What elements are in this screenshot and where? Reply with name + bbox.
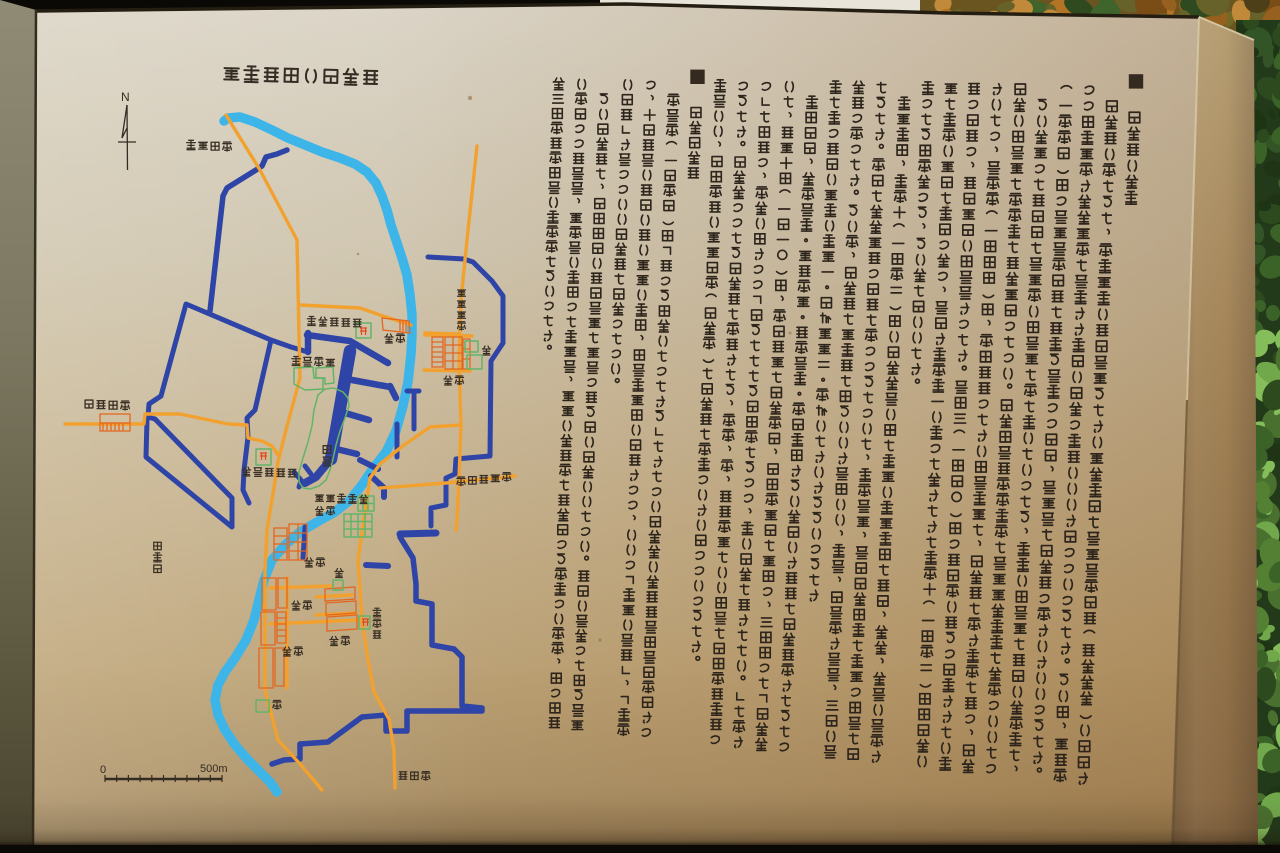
- svg-text:N: N: [121, 90, 130, 104]
- svg-text:500m: 500m: [200, 763, 228, 775]
- svg-text:0: 0: [100, 764, 106, 776]
